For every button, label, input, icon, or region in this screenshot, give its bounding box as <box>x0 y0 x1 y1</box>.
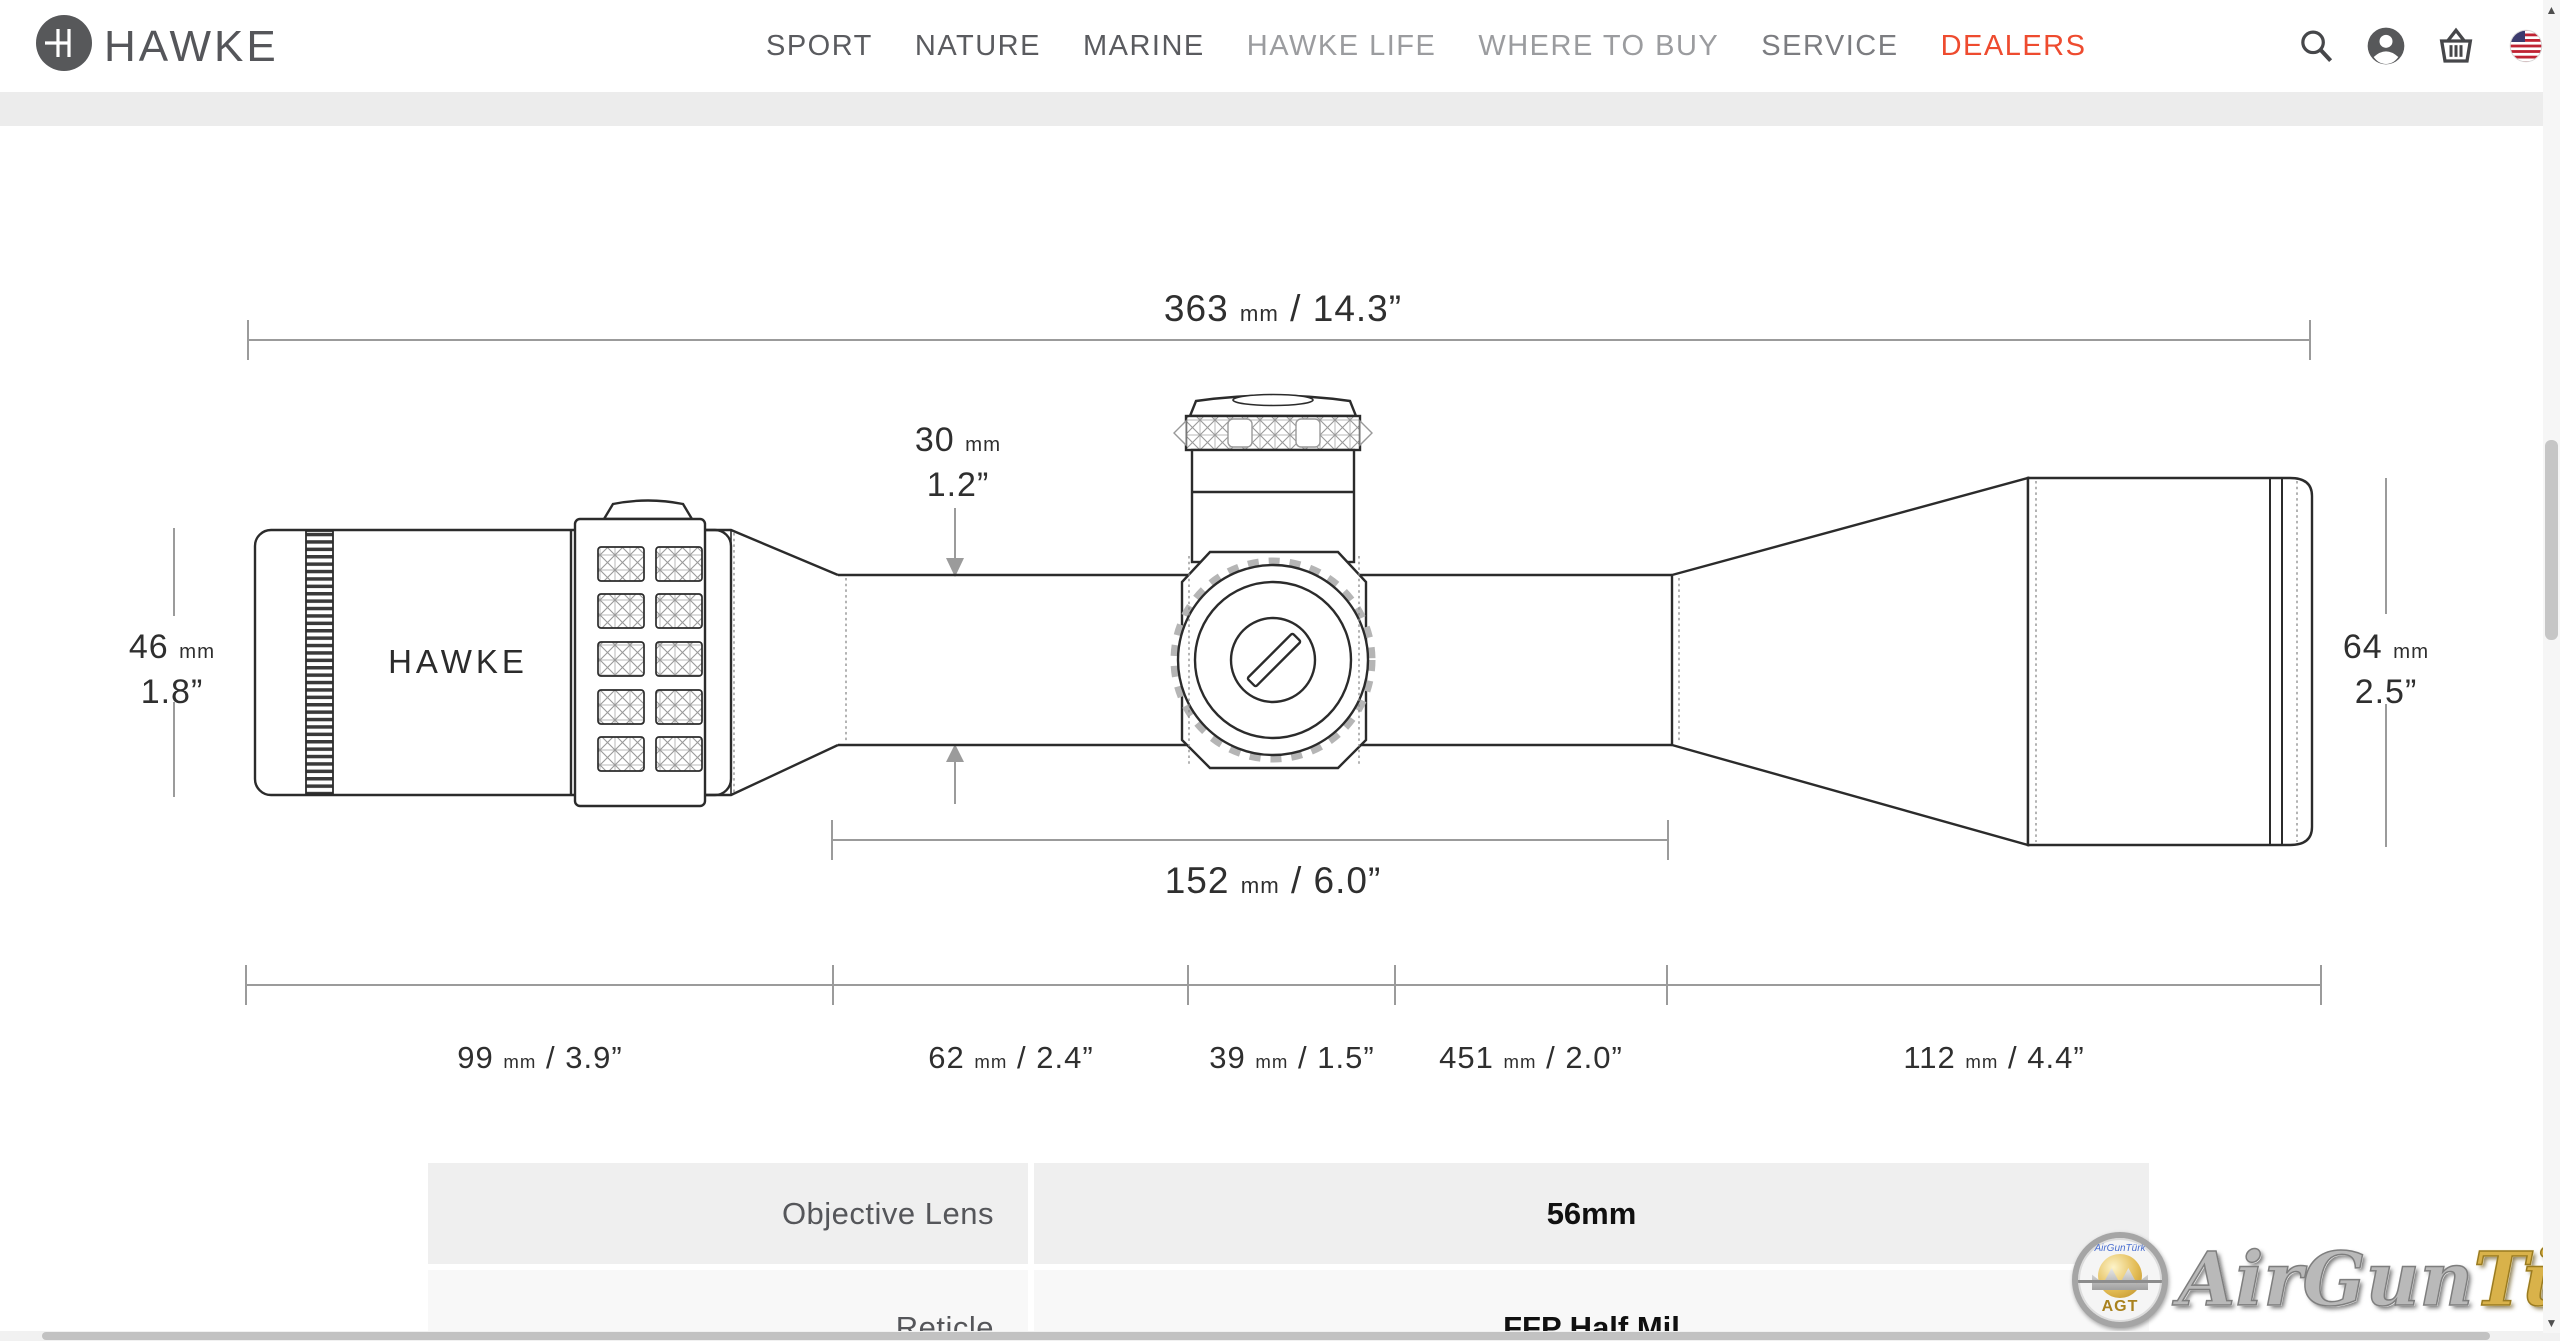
dim-tube-diameter: 30 mm 1.2” <box>915 420 1001 505</box>
crosshair-h-icon <box>36 15 92 71</box>
basket-icon[interactable] <box>2436 26 2476 66</box>
dim-objective-diameter: 64 mm 2.5” <box>2343 627 2429 712</box>
watermark-text: AirGunTürk <box>2178 1243 2560 1317</box>
objective-bell <box>1672 478 2312 845</box>
nav-dealers[interactable]: DEALERS <box>1941 30 2087 63</box>
nav-nature[interactable]: NATURE <box>915 30 1041 63</box>
dim-segment-tube-left: 62 mm / 2.4” <box>928 1042 1093 1073</box>
dim-saddle-length: 152 mm / 6.0” <box>1165 862 1382 899</box>
nav-sport[interactable]: SPORT <box>766 30 873 63</box>
scope-brand-label: HAWKE <box>388 643 528 681</box>
dim-segment-eyepiece: 99 mm / 3.9” <box>457 1042 622 1073</box>
scrollbar-corner <box>2543 1333 2560 1341</box>
nav-where-to-buy[interactable]: WHERE TO BUY <box>1478 30 1719 63</box>
turret-saddle <box>1174 552 1372 768</box>
scope-diagram <box>0 0 2560 1341</box>
agt-badge-icon: AirGunTürk AGT <box>2072 1232 2168 1328</box>
dim-segment-saddle: 39 mm / 1.5” <box>1209 1042 1374 1073</box>
horizontal-scrollbar[interactable] <box>0 1331 2543 1341</box>
header-icons <box>2296 26 2546 66</box>
horizontal-scrollbar-thumb[interactable] <box>42 1332 2490 1340</box>
brand-wordmark[interactable]: HAWKE <box>104 22 279 72</box>
watermark-text-silver: AirGun <box>2178 1237 2473 1323</box>
scope-body <box>255 395 2312 846</box>
badge-gold-ball <box>2098 1254 2142 1298</box>
dim-segment-bell: 112 mm / 4.4” <box>1903 1042 2084 1073</box>
nav-marine[interactable]: MARINE <box>1083 30 1205 63</box>
hawke-logo-icon[interactable] <box>36 15 92 71</box>
header: HAWKE SPORT NATURE MARINE HAWKE LIFE WHE… <box>0 0 2543 92</box>
dim-segment-tube-right: 451 mm / 2.0” <box>1439 1042 1623 1073</box>
dim-eyepiece-diameter: 46 mm 1.8” <box>129 627 215 712</box>
airgunturk-watermark: AirGunTürk AGT AirGunTürk <box>2072 1232 2560 1328</box>
badge-agt-text: AGT <box>2078 1298 2162 1316</box>
spec-label-objective-lens: Objective Lens <box>428 1163 1028 1264</box>
scroll-up-icon[interactable]: ▲ <box>2543 0 2560 20</box>
badge-script-text: AirGunTürk <box>2078 1243 2162 1254</box>
scroll-down-icon[interactable]: ▼ <box>2543 1313 2560 1333</box>
account-icon[interactable] <box>2366 26 2406 66</box>
vertical-scrollbar-thumb[interactable] <box>2545 440 2558 640</box>
spec-value-objective-lens: 56mm <box>1034 1163 2149 1264</box>
nav-service[interactable]: SERVICE <box>1761 30 1898 63</box>
search-icon[interactable] <box>2296 26 2336 66</box>
vertical-scrollbar[interactable]: ▲ ▼ <box>2543 0 2560 1333</box>
elevation-turret <box>1174 395 1372 563</box>
main-nav: SPORT NATURE MARINE HAWKE LIFE WHERE TO … <box>766 30 2086 63</box>
dim-total-length: 363 mm / 14.3” <box>1164 290 1402 327</box>
nav-hawke-life[interactable]: HAWKE LIFE <box>1247 30 1437 63</box>
page: HAWKE SPORT NATURE MARINE HAWKE LIFE WHE… <box>0 0 2560 1341</box>
us-flag-icon[interactable] <box>2506 26 2546 66</box>
badge-line <box>2078 1280 2162 1283</box>
